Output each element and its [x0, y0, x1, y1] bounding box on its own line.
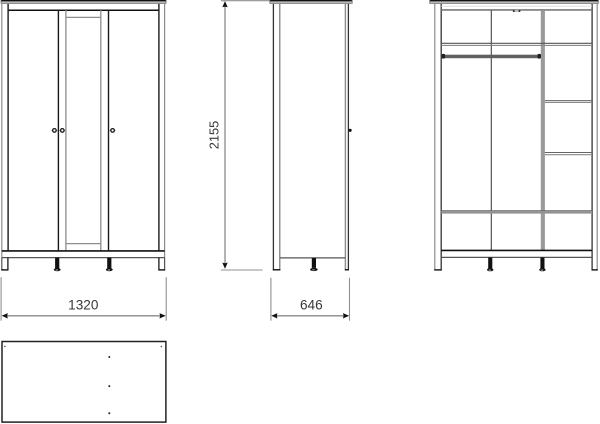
svg-text:1320: 1320	[68, 298, 99, 313]
svg-text:646: 646	[300, 298, 323, 313]
svg-text:2155: 2155	[206, 121, 221, 149]
